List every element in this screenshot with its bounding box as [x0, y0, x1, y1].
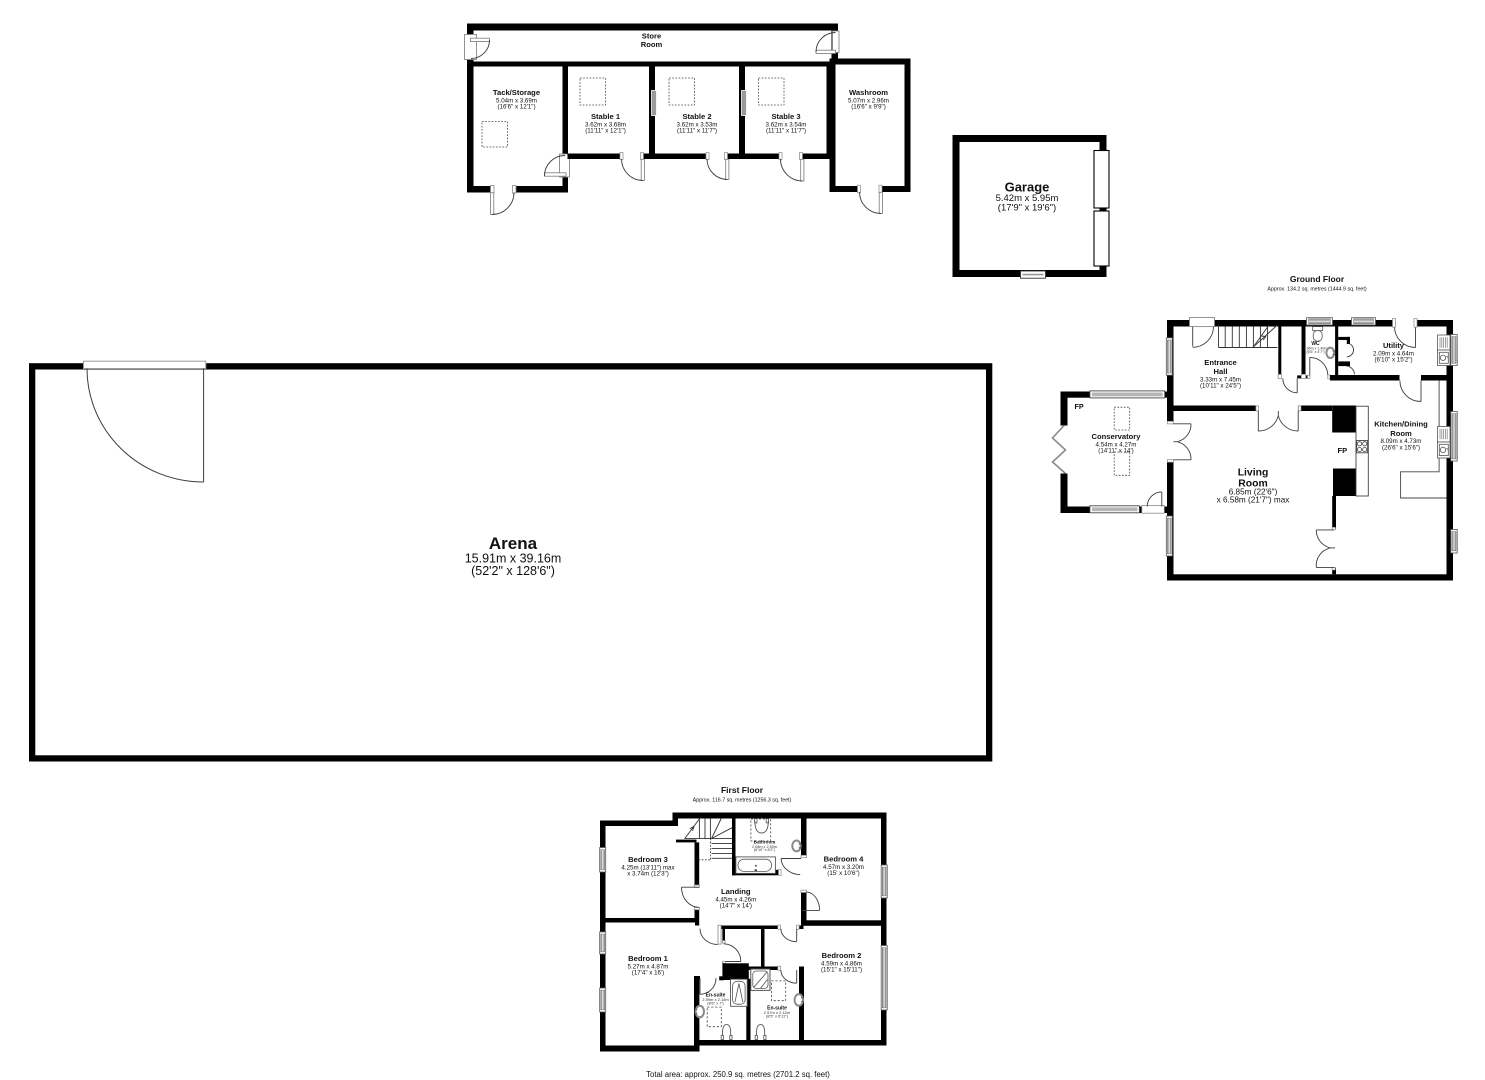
svg-text:Stable 2: Stable 2 [682, 112, 711, 121]
svg-text:(26'6" x 15'6"): (26'6" x 15'6") [1382, 445, 1420, 452]
svg-text:Conservatory: Conservatory [1092, 432, 1142, 441]
svg-text:Bedroom 4: Bedroom 4 [824, 855, 864, 864]
svg-text:Bathroom: Bathroom [754, 840, 776, 845]
svg-text:Stable 3: Stable 3 [771, 112, 800, 121]
svg-text:Ground Floor: Ground Floor [1290, 274, 1345, 284]
svg-text:(8'6" x 7'): (8'6" x 7') [707, 1001, 724, 1006]
svg-text:First Floor: First Floor [721, 785, 764, 795]
svg-text:(6'10" x 15'2"): (6'10" x 15'2") [1374, 357, 1412, 364]
svg-text:Kitchen/Dining: Kitchen/Dining [1374, 420, 1428, 429]
svg-text:Arena: Arena [489, 534, 538, 553]
svg-text:Bedroom 3: Bedroom 3 [628, 855, 668, 864]
svg-text:(6'5" x 4'7"): (6'5" x 4'7") [1306, 350, 1324, 354]
svg-text:FP: FP [1337, 446, 1347, 455]
svg-text:Stable 1: Stable 1 [591, 112, 621, 121]
svg-text:Entrance: Entrance [1204, 358, 1237, 367]
svg-text:Hall: Hall [1214, 367, 1228, 376]
svg-text:(15' x 10'6"): (15' x 10'6") [827, 870, 859, 877]
svg-text:x 3.74m (12'3"): x 3.74m (12'3") [627, 871, 669, 878]
svg-text:Approx. 134.2 sq. metres (1444: Approx. 134.2 sq. metres (1444.9 sq. fee… [1267, 287, 1366, 293]
svg-text:Approx. 116.7 sq. metres (1256: Approx. 116.7 sq. metres (1256.3 sq. fee… [693, 798, 792, 804]
svg-text:(17'4" x 16'): (17'4" x 16') [632, 970, 664, 977]
svg-text:Total area: approx. 250.9 sq.: Total area: approx. 250.9 sq. metres (27… [646, 1070, 830, 1079]
svg-text:Room: Room [1390, 429, 1412, 438]
svg-text:Utility: Utility [1383, 341, 1405, 350]
svg-text:(15'1" x 15'11"): (15'1" x 15'11") [821, 967, 862, 974]
svg-text:Living: Living [1238, 467, 1269, 478]
svg-text:Bedroom 2: Bedroom 2 [822, 951, 862, 960]
svg-text:(11'11" x 11'7"): (11'11" x 11'7") [766, 128, 806, 135]
svg-text:Room: Room [641, 40, 663, 49]
svg-text:(6'10" x 8'2"): (6'10" x 8'2") [754, 848, 776, 852]
svg-text:(52'2" x 128'6"): (52'2" x 128'6") [471, 564, 555, 578]
svg-text:Washroom: Washroom [849, 88, 888, 97]
svg-text:(14'11" x 14'): (14'11" x 14') [1098, 448, 1133, 455]
svg-text:(14'7" x 14'): (14'7" x 14') [720, 903, 752, 910]
svg-text:(17'9" x 19'6"): (17'9" x 19'6") [998, 203, 1056, 214]
svg-text:(8'5" x 6'11"): (8'5" x 6'11") [766, 1014, 789, 1019]
svg-text:Landing: Landing [721, 887, 751, 896]
svg-text:Bedroom 1: Bedroom 1 [628, 954, 668, 963]
svg-text:(11'11" x 11'7"): (11'11" x 11'7") [677, 128, 717, 135]
svg-text:FP: FP [1075, 402, 1084, 411]
svg-text:Tack/Storage: Tack/Storage [493, 88, 540, 97]
svg-text:(16'6" x 9'9"): (16'6" x 9'9") [851, 104, 886, 111]
svg-text:(16'6" x 12'1"): (16'6" x 12'1") [497, 104, 535, 111]
svg-text:(10'11" x 24'5"): (10'11" x 24'5") [1200, 383, 1241, 390]
svg-text:x 6.58m (21'7") max: x 6.58m (21'7") max [1217, 495, 1290, 504]
svg-text:(11'11" x 12'1"): (11'11" x 12'1") [585, 128, 626, 135]
